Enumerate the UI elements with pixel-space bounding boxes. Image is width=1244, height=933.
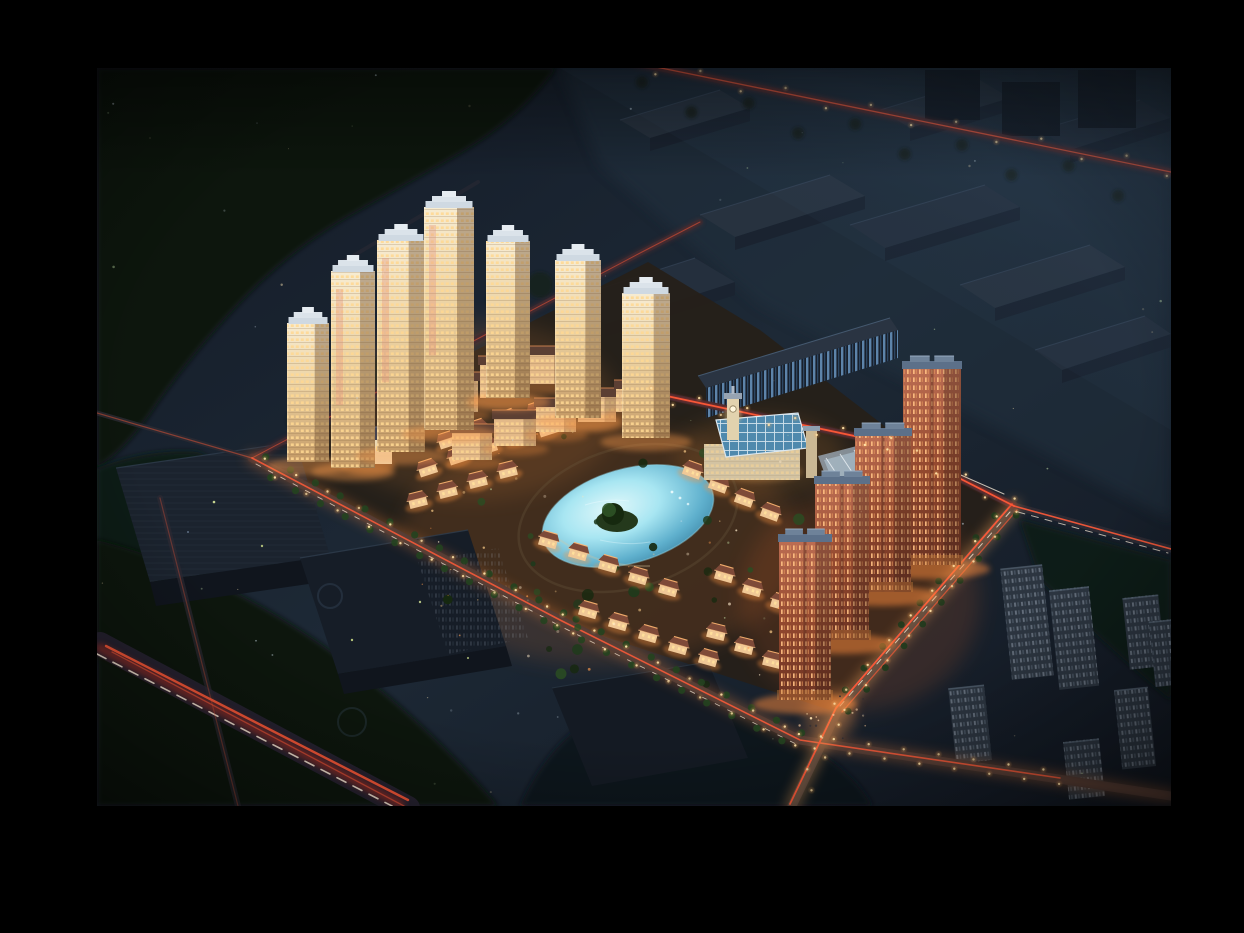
vignette	[97, 68, 1171, 806]
rendering-photo: Night-time bird's-eye rendering of a res…	[0, 0, 1244, 933]
rendering-canvas: Night-time bird's-eye rendering of a res…	[0, 0, 1244, 933]
photo	[97, 51, 1181, 808]
